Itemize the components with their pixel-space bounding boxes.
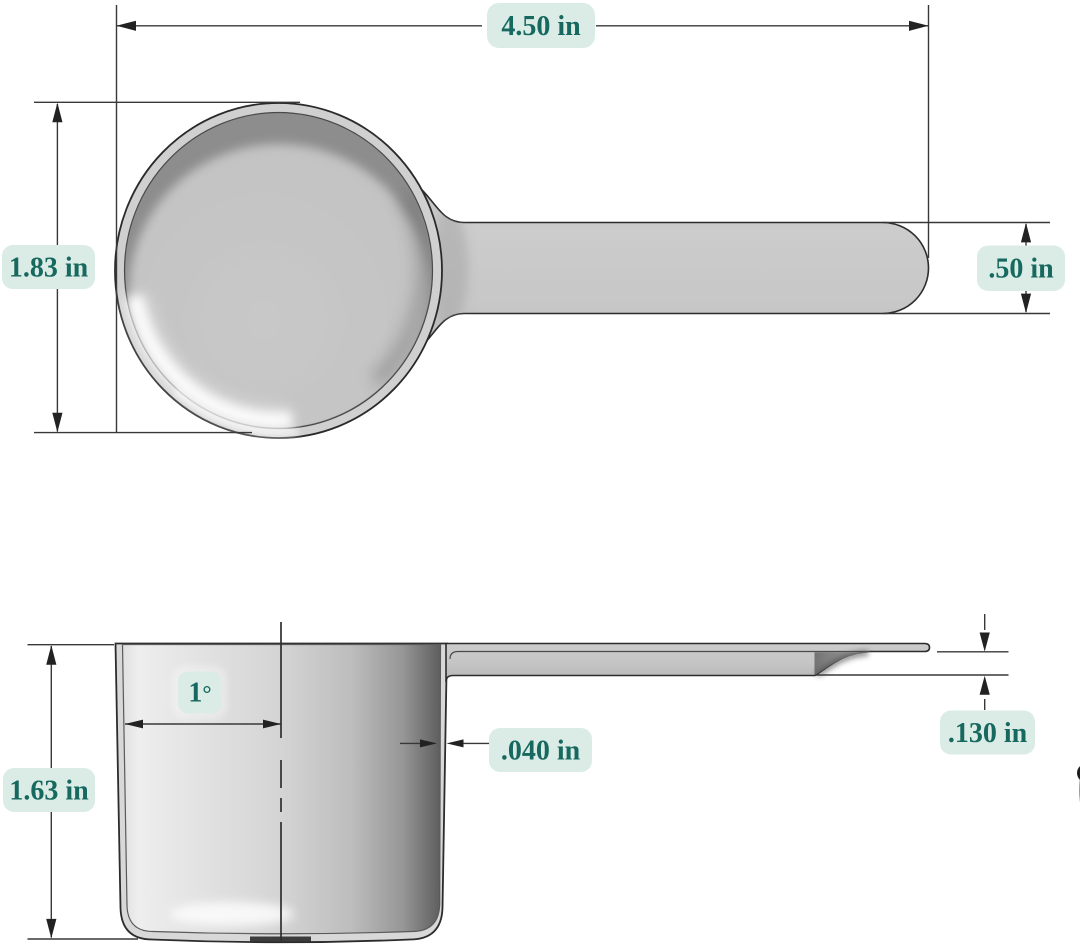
svg-text:1°: 1°	[188, 678, 211, 709]
svg-text:.040 in: .040 in	[501, 736, 581, 767]
svg-text:.130 in: .130 in	[948, 718, 1028, 749]
svg-text:4.50 in: 4.50 in	[501, 11, 581, 42]
svg-text:1.83 in: 1.83 in	[9, 253, 89, 284]
svg-text:1.63 in: 1.63 in	[9, 776, 89, 807]
svg-text:.50 in: .50 in	[988, 254, 1054, 285]
